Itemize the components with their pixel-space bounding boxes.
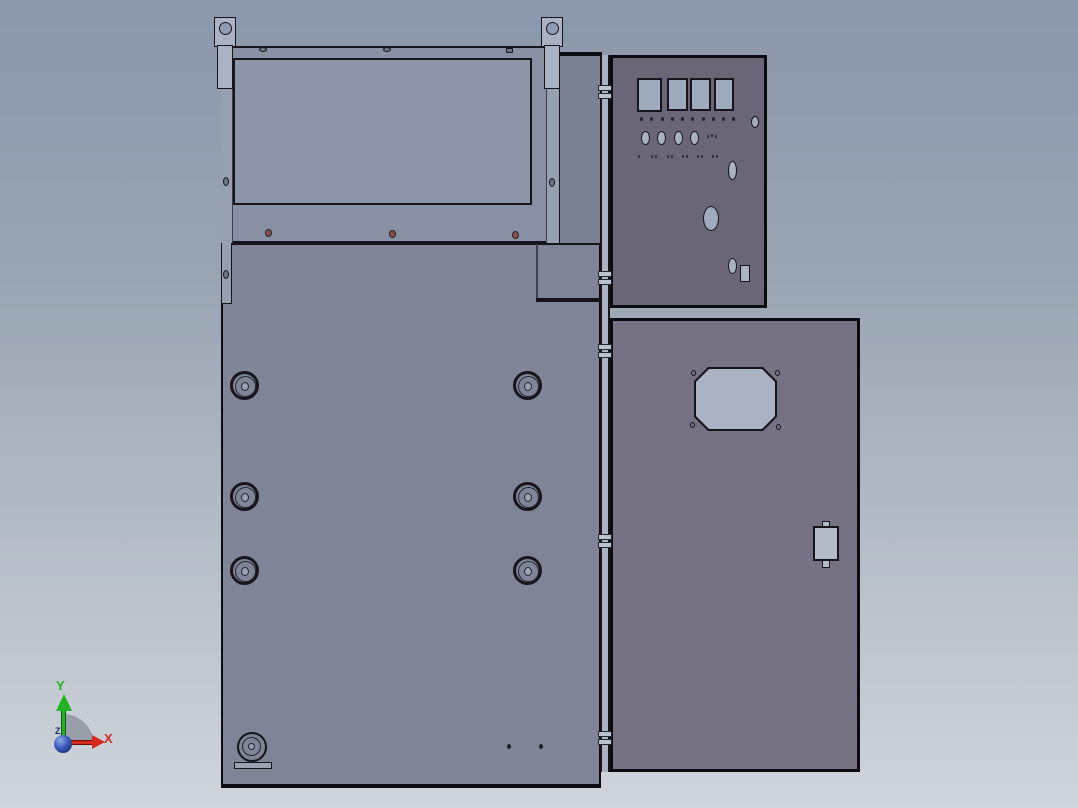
main-door-panel[interactable] — [221, 243, 601, 788]
door-lock[interactable] — [237, 732, 267, 762]
cable-gland-knockout[interactable] — [230, 371, 259, 400]
meter-window — [667, 78, 688, 111]
panel-label-hole — [686, 155, 688, 158]
panel-pilot-hole — [650, 117, 653, 121]
panel-handle-hole — [703, 206, 719, 231]
panel-label-hole — [638, 155, 640, 158]
panel-pilot-hole — [691, 117, 694, 121]
door-pilot-hole — [507, 744, 511, 749]
door-pilot-hole — [539, 744, 543, 749]
cad-viewport[interactable]: Y X Z — [0, 0, 1078, 808]
rail-screw — [512, 231, 519, 239]
panel-small-hole — [707, 135, 709, 138]
x-axis-label: X — [104, 731, 113, 746]
recessed-back-panel[interactable] — [233, 58, 532, 205]
panel-label-hole — [655, 155, 657, 158]
panel-pilot-hole — [661, 117, 664, 121]
panel-label-hole — [712, 155, 714, 158]
window-corner-hole — [776, 424, 781, 430]
top-rail-hole — [259, 47, 267, 52]
hinge-knuckle — [598, 542, 612, 548]
indicator-lamp-hole — [674, 131, 683, 145]
panel-label-hole — [651, 155, 653, 158]
meter-window — [637, 78, 662, 112]
hinge-knuckle — [598, 352, 612, 358]
indicator-lamp-hole — [657, 131, 666, 145]
hinge-knuckle — [598, 731, 612, 737]
panel-pilot-hole — [722, 117, 725, 121]
meter-window — [690, 78, 711, 111]
window-corner-hole — [775, 370, 780, 376]
panel-switch-hole — [728, 161, 737, 180]
lifting-lug-right-hole — [546, 22, 559, 35]
door-lock-keyhole — [248, 743, 255, 750]
rail-screw — [389, 230, 396, 238]
meter-window — [714, 78, 734, 111]
panel-pilot-hole — [702, 117, 705, 121]
cable-gland-knockout[interactable] — [230, 556, 259, 585]
top-rail-hole — [383, 47, 391, 52]
cable-gland-knockout[interactable] — [513, 371, 542, 400]
hinge-knuckle — [598, 85, 612, 91]
panel-pilot-hole — [712, 117, 715, 121]
hinge-knuckle — [598, 93, 612, 99]
cable-gland-knockout[interactable] — [513, 556, 542, 585]
cable-gland-knockout[interactable] — [513, 482, 542, 511]
frame-bolt-hole — [223, 270, 229, 279]
panel-small-hole — [715, 135, 717, 138]
cable-gland-knockout[interactable] — [230, 482, 259, 511]
indicator-lamp-hole — [690, 131, 699, 145]
side-filler-panel[interactable] — [558, 52, 602, 243]
hinge-knuckle — [598, 534, 612, 540]
lifting-lug-left-shank — [217, 45, 233, 89]
panel-small-hole — [711, 134, 713, 137]
panel-label-hole — [682, 155, 684, 158]
inspection-window — [696, 369, 775, 429]
panel-label-hole — [667, 155, 669, 158]
panel-pilot-hole — [640, 117, 643, 121]
panel-latch-hole — [728, 258, 737, 274]
door-step-edge-vertical — [536, 244, 538, 299]
y-axis-arrowhead — [56, 694, 72, 711]
panel-latch-plate — [740, 265, 750, 282]
hinge-knuckle — [598, 279, 612, 285]
frame-bolt-hole — [223, 177, 229, 186]
door-step-edge-horizontal — [536, 298, 602, 302]
panel-label-hole — [716, 155, 718, 158]
indicator-lamp-hole — [641, 131, 650, 145]
window-corner-hole — [690, 422, 695, 428]
window-corner-hole — [691, 370, 696, 376]
panel-label-hole — [697, 155, 699, 158]
panel-key-switch-hole — [751, 116, 759, 128]
hinge-knuckle — [598, 739, 612, 745]
panel-pilot-hole — [671, 117, 674, 121]
lifting-lug-left-hole — [219, 22, 232, 35]
door-lock-plate — [234, 762, 272, 769]
origin-sphere — [54, 735, 72, 753]
hinge-knuckle — [598, 271, 612, 277]
frame-bolt-hole — [549, 178, 555, 187]
panel-pilot-hole — [681, 117, 684, 121]
hinge-pillar[interactable] — [600, 55, 610, 772]
panel-label-hole — [671, 155, 673, 158]
hinge-knuckle — [598, 344, 612, 350]
top-rail-hole — [506, 48, 513, 53]
y-axis-label: Y — [56, 678, 65, 693]
door-latch[interactable] — [813, 526, 839, 561]
panel-pilot-hole — [732, 117, 735, 121]
rail-screw — [265, 229, 272, 237]
lifting-lug-right-shank — [544, 45, 560, 89]
panel-label-hole — [701, 155, 703, 158]
